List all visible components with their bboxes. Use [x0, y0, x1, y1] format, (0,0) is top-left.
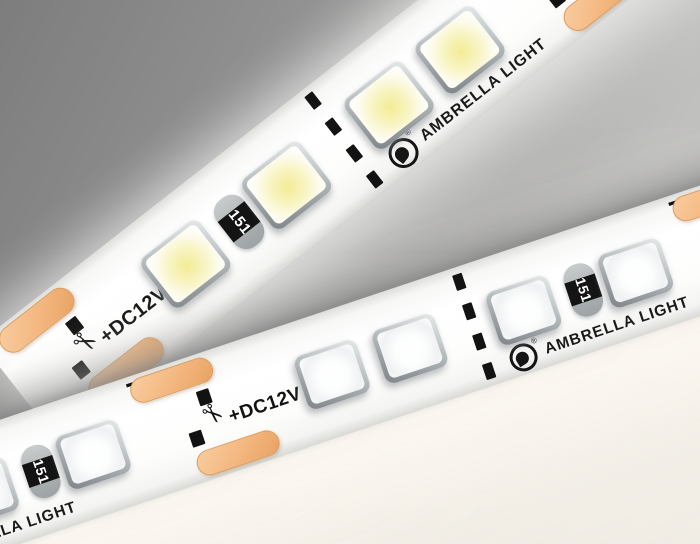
cut-contact-mark	[188, 430, 205, 448]
cut-contact-mark	[547, 0, 566, 9]
resistor-band: 151	[217, 201, 261, 244]
led-lens	[376, 317, 444, 379]
dash-mark	[366, 170, 384, 189]
voltage-label: +DC12V	[226, 383, 304, 428]
resistor-code-label: 151	[224, 206, 254, 237]
cut-contact-mark	[72, 360, 91, 380]
resistor-code-label: 151	[572, 276, 595, 305]
led-lens	[601, 241, 669, 303]
dash-mark	[304, 91, 322, 110]
led	[53, 416, 134, 491]
resistor-band: 151	[563, 273, 603, 307]
led	[369, 311, 450, 386]
dash-mark	[325, 117, 343, 136]
led-lens	[245, 144, 329, 226]
dash-mark	[482, 362, 497, 380]
resistor-band: 151	[21, 455, 61, 489]
logo-droplet-shape	[392, 145, 412, 165]
scene: −✂+DC12V151®AMBRELLA LIGHT−✂+DC12V151®AM…	[0, 0, 700, 544]
dash-mark	[472, 332, 487, 350]
dash-mark	[452, 273, 467, 291]
led-lens	[59, 423, 127, 485]
dash-mark	[345, 144, 363, 163]
logo-droplet-shape	[513, 349, 531, 367]
led-lens	[298, 343, 366, 405]
resistor-code-label: 151	[29, 457, 52, 486]
dash-mark	[462, 302, 477, 320]
brand-logo-icon: ®	[506, 340, 541, 375]
led-lens	[490, 279, 558, 341]
